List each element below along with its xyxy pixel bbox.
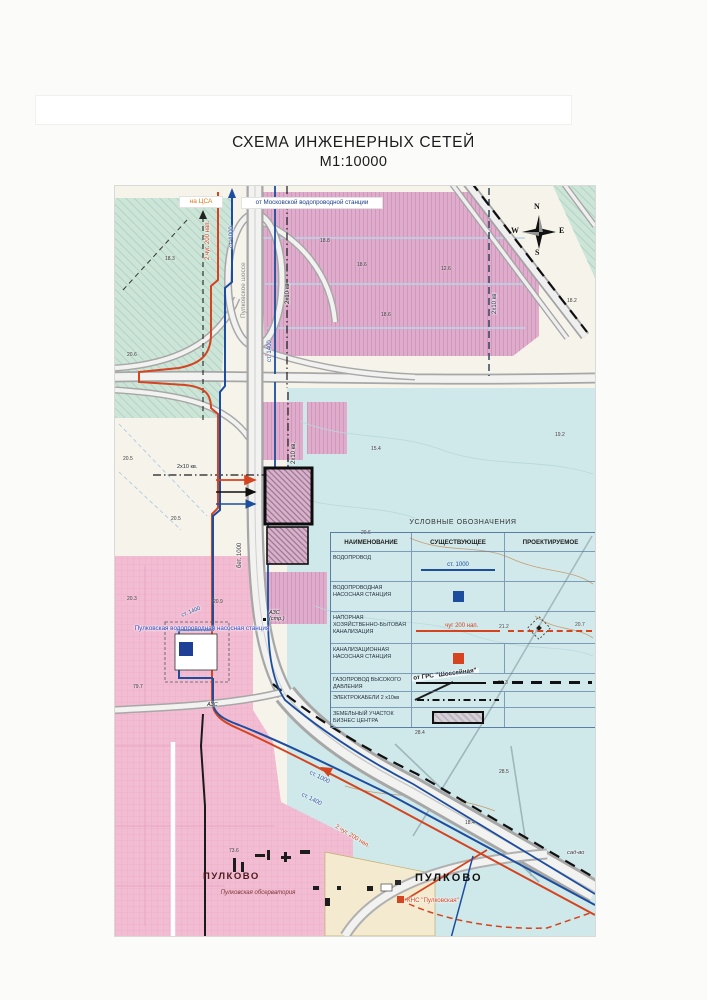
- spot-elevation: 18.4: [465, 820, 475, 826]
- legend-row-plot-name: ЗЕМЕЛЬНЫЙ УЧАСТОК БИЗНЕС ЦЕНТРА: [331, 707, 411, 727]
- legend-row-electric-symbol: [411, 691, 504, 707]
- azs-marker: [263, 618, 266, 621]
- spot-elevation: 12.6: [441, 266, 451, 272]
- spot-elevation: 28.5: [499, 769, 509, 775]
- legend-row-kns-name: КАНАЛИЗАЦИОННАЯ НАСОСНАЯ СТАНЦИЯ: [331, 643, 411, 673]
- label-sewer-top: 2 чуг. 200 нап.: [205, 221, 211, 260]
- page-title: СХЕМА ИНЖЕНЕРНЫХ СЕТЕЙ: [0, 134, 707, 152]
- building: [395, 880, 401, 885]
- gas-line-projected-symbol: [493, 681, 592, 684]
- legend-row-plot-symbol: [411, 707, 504, 727]
- sewage-pump-station-symbol: [453, 653, 464, 664]
- legend-row-sewer-symbol: чуг 200 нап.: [411, 611, 596, 643]
- label-water-1400: ст. 1400: [267, 340, 273, 362]
- legend-col-existing: СУЩЕСТВУЮЩЕЕ: [411, 533, 504, 551]
- business-center-plot-symbol: [432, 711, 484, 724]
- spot-elevation: 28.4: [415, 730, 425, 736]
- legend-title: УСЛОВНЫЕ ОБОЗНАЧЕНИЯ: [330, 519, 596, 526]
- spot-elevation: 20.5: [123, 456, 133, 462]
- compass-east: E: [559, 226, 564, 235]
- spot-elevation: 19.2: [555, 432, 565, 438]
- legend-sewer-size-label: чуг 200 нап.: [445, 623, 478, 629]
- blank-label-box: [35, 95, 572, 125]
- page-scale: М1:10000: [0, 154, 707, 170]
- spot-elevation: 18.2: [567, 298, 577, 304]
- spot-elevation: 15.4: [371, 446, 381, 452]
- legend-row-wps-name: ВОДОПРОВОДНАЯ НАСОСНАЯ СТАНЦИЯ: [331, 581, 411, 611]
- legend-water-size-label: ст. 1000: [447, 562, 469, 568]
- gas-line-existing-symbol: [416, 682, 487, 684]
- kns-marker: [397, 896, 404, 903]
- document-page: СХЕМА ИНЖЕНЕРНЫХ СЕТЕЙ М1:10000: [0, 0, 707, 1000]
- label-sadvo: сад-во: [567, 850, 584, 856]
- label-pump-station: Пулковская водопроводная насосная станци…: [117, 626, 287, 633]
- label-from-moscow-station: от Московской водопроводной станции: [241, 197, 383, 209]
- legend-col-name: НАИМЕНОВАНИЕ: [331, 533, 411, 551]
- legend-row-wps-symbol: [411, 581, 504, 611]
- label-road-name: Пулковское шоссе: [241, 262, 248, 318]
- spot-elevation: 79.7: [133, 684, 143, 690]
- kns-building: [381, 884, 392, 891]
- label-cable-top: 2х10 кв: [285, 284, 291, 305]
- legend-row-water-name: ВОДОПРОВОД: [331, 551, 411, 581]
- label-pulkovo-west: ПУЛКОВО: [203, 872, 260, 882]
- compass-south: S: [535, 248, 539, 257]
- legend-row-electric-name: ЭЛЕКТРОКАБЕЛИ 2 х10кв: [331, 691, 411, 707]
- label-azs-construction: АЗС (стр.): [269, 610, 295, 622]
- label-water-bet1000: бет. 1000: [237, 543, 243, 568]
- engineering-networks-map: на ЦСА от Московской водопроводной станц…: [114, 185, 596, 937]
- business-center-plot-2: [267, 527, 308, 564]
- legend-row-kns-symbol: [411, 643, 504, 673]
- legend-row-gas-name: ГАЗОПРОВОД ВЫСОКОГО ДАВЛЕНИЯ: [331, 673, 411, 691]
- compass-west: W: [511, 226, 519, 235]
- legend-row-water-symbol: ст. 1000: [411, 551, 504, 581]
- spot-elevation: 20.5: [171, 516, 181, 522]
- legend-table: НАИМЕНОВАНИЕ СУЩЕСТВУЮЩЕЕ ПРОЕКТИРУЕМОЕ …: [330, 532, 596, 728]
- compass-north: N: [534, 202, 540, 211]
- label-cable-right: 2х10 кв: [492, 294, 498, 315]
- spot-elevation: 20.6: [127, 352, 137, 358]
- sewer-line-existing-symbol: [416, 630, 501, 632]
- label-observatory: Пулковская обсерватория: [203, 890, 313, 897]
- water-line-symbol: [421, 569, 495, 571]
- label-pulkovo-east: ПУЛКОВО: [415, 872, 483, 884]
- label-cable-mid-vertical: 2х10 кв.: [291, 442, 297, 464]
- spot-elevation: 18.6: [381, 312, 391, 318]
- sewer-line-projected-symbol: [508, 630, 593, 632]
- legend-row-gas-symbol: [411, 673, 596, 691]
- map-legend: УСЛОВНЫЕ ОБОЗНАЧЕНИЯ НАИМЕНОВАНИЕ СУЩЕСТ…: [330, 519, 596, 728]
- spot-elevation: 18.3: [165, 256, 175, 262]
- spot-elevation: 73.6: [229, 848, 239, 854]
- electric-cable-symbol: [417, 699, 500, 701]
- water-pump-station-symbol: [453, 591, 464, 602]
- spot-elevation: 20.9: [213, 599, 223, 605]
- label-kns: КНС "Пулковская": [407, 898, 459, 905]
- spot-elevation: 18.6: [357, 262, 367, 268]
- legend-row-sewer-name: НАПОРНАЯ ХОЗЯЙСТВЕННО-БЫТОВАЯ КАНАЛИЗАЦИ…: [331, 611, 411, 643]
- water-pump-station-marker: [179, 642, 193, 656]
- spot-elevation: 18.8: [320, 238, 330, 244]
- block-central-2: [307, 402, 347, 454]
- label-cable-mid-horizontal: 2х10 кв.: [177, 464, 197, 470]
- label-azs: АЗС: [207, 702, 218, 708]
- legend-col-projected: ПРОЕКТИРУЕМОЕ: [504, 533, 596, 551]
- label-water-top: ст. 1000: [229, 226, 235, 248]
- label-na-csa: на ЦСА: [179, 196, 223, 208]
- spot-elevation: 20.3: [127, 596, 137, 602]
- business-center-plot: [265, 468, 312, 524]
